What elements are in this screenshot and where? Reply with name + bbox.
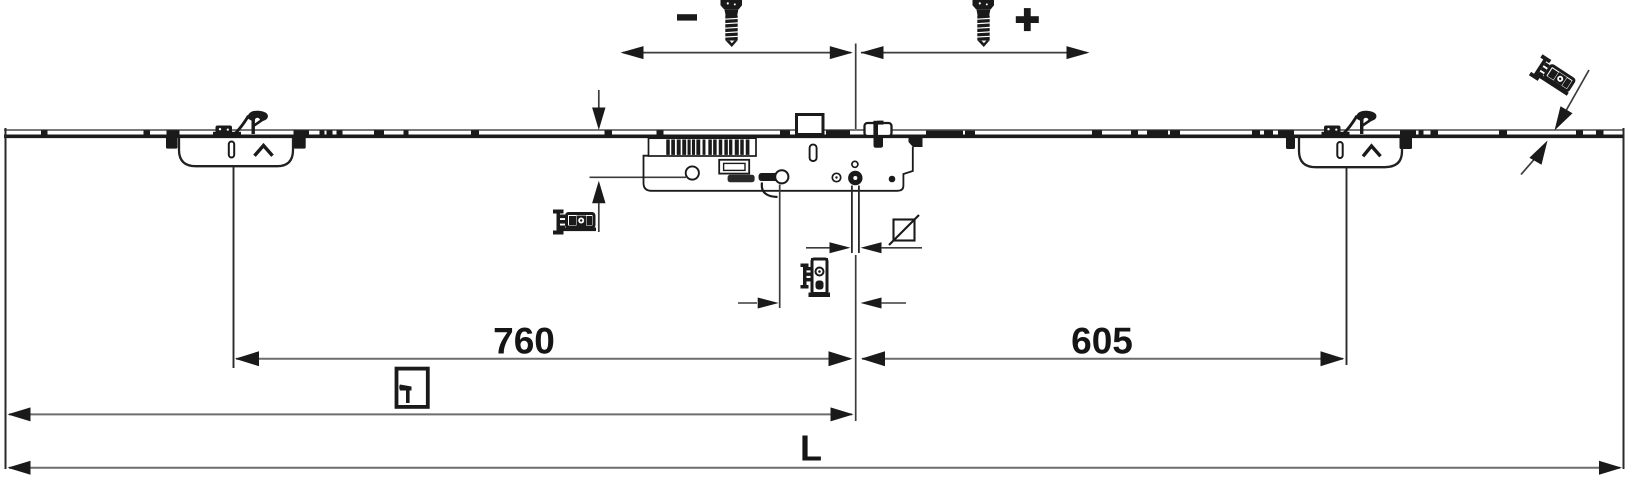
svg-text:760: 760 [493,321,555,362]
svg-text:L: L [800,428,822,469]
svg-text:605: 605 [1071,321,1133,362]
